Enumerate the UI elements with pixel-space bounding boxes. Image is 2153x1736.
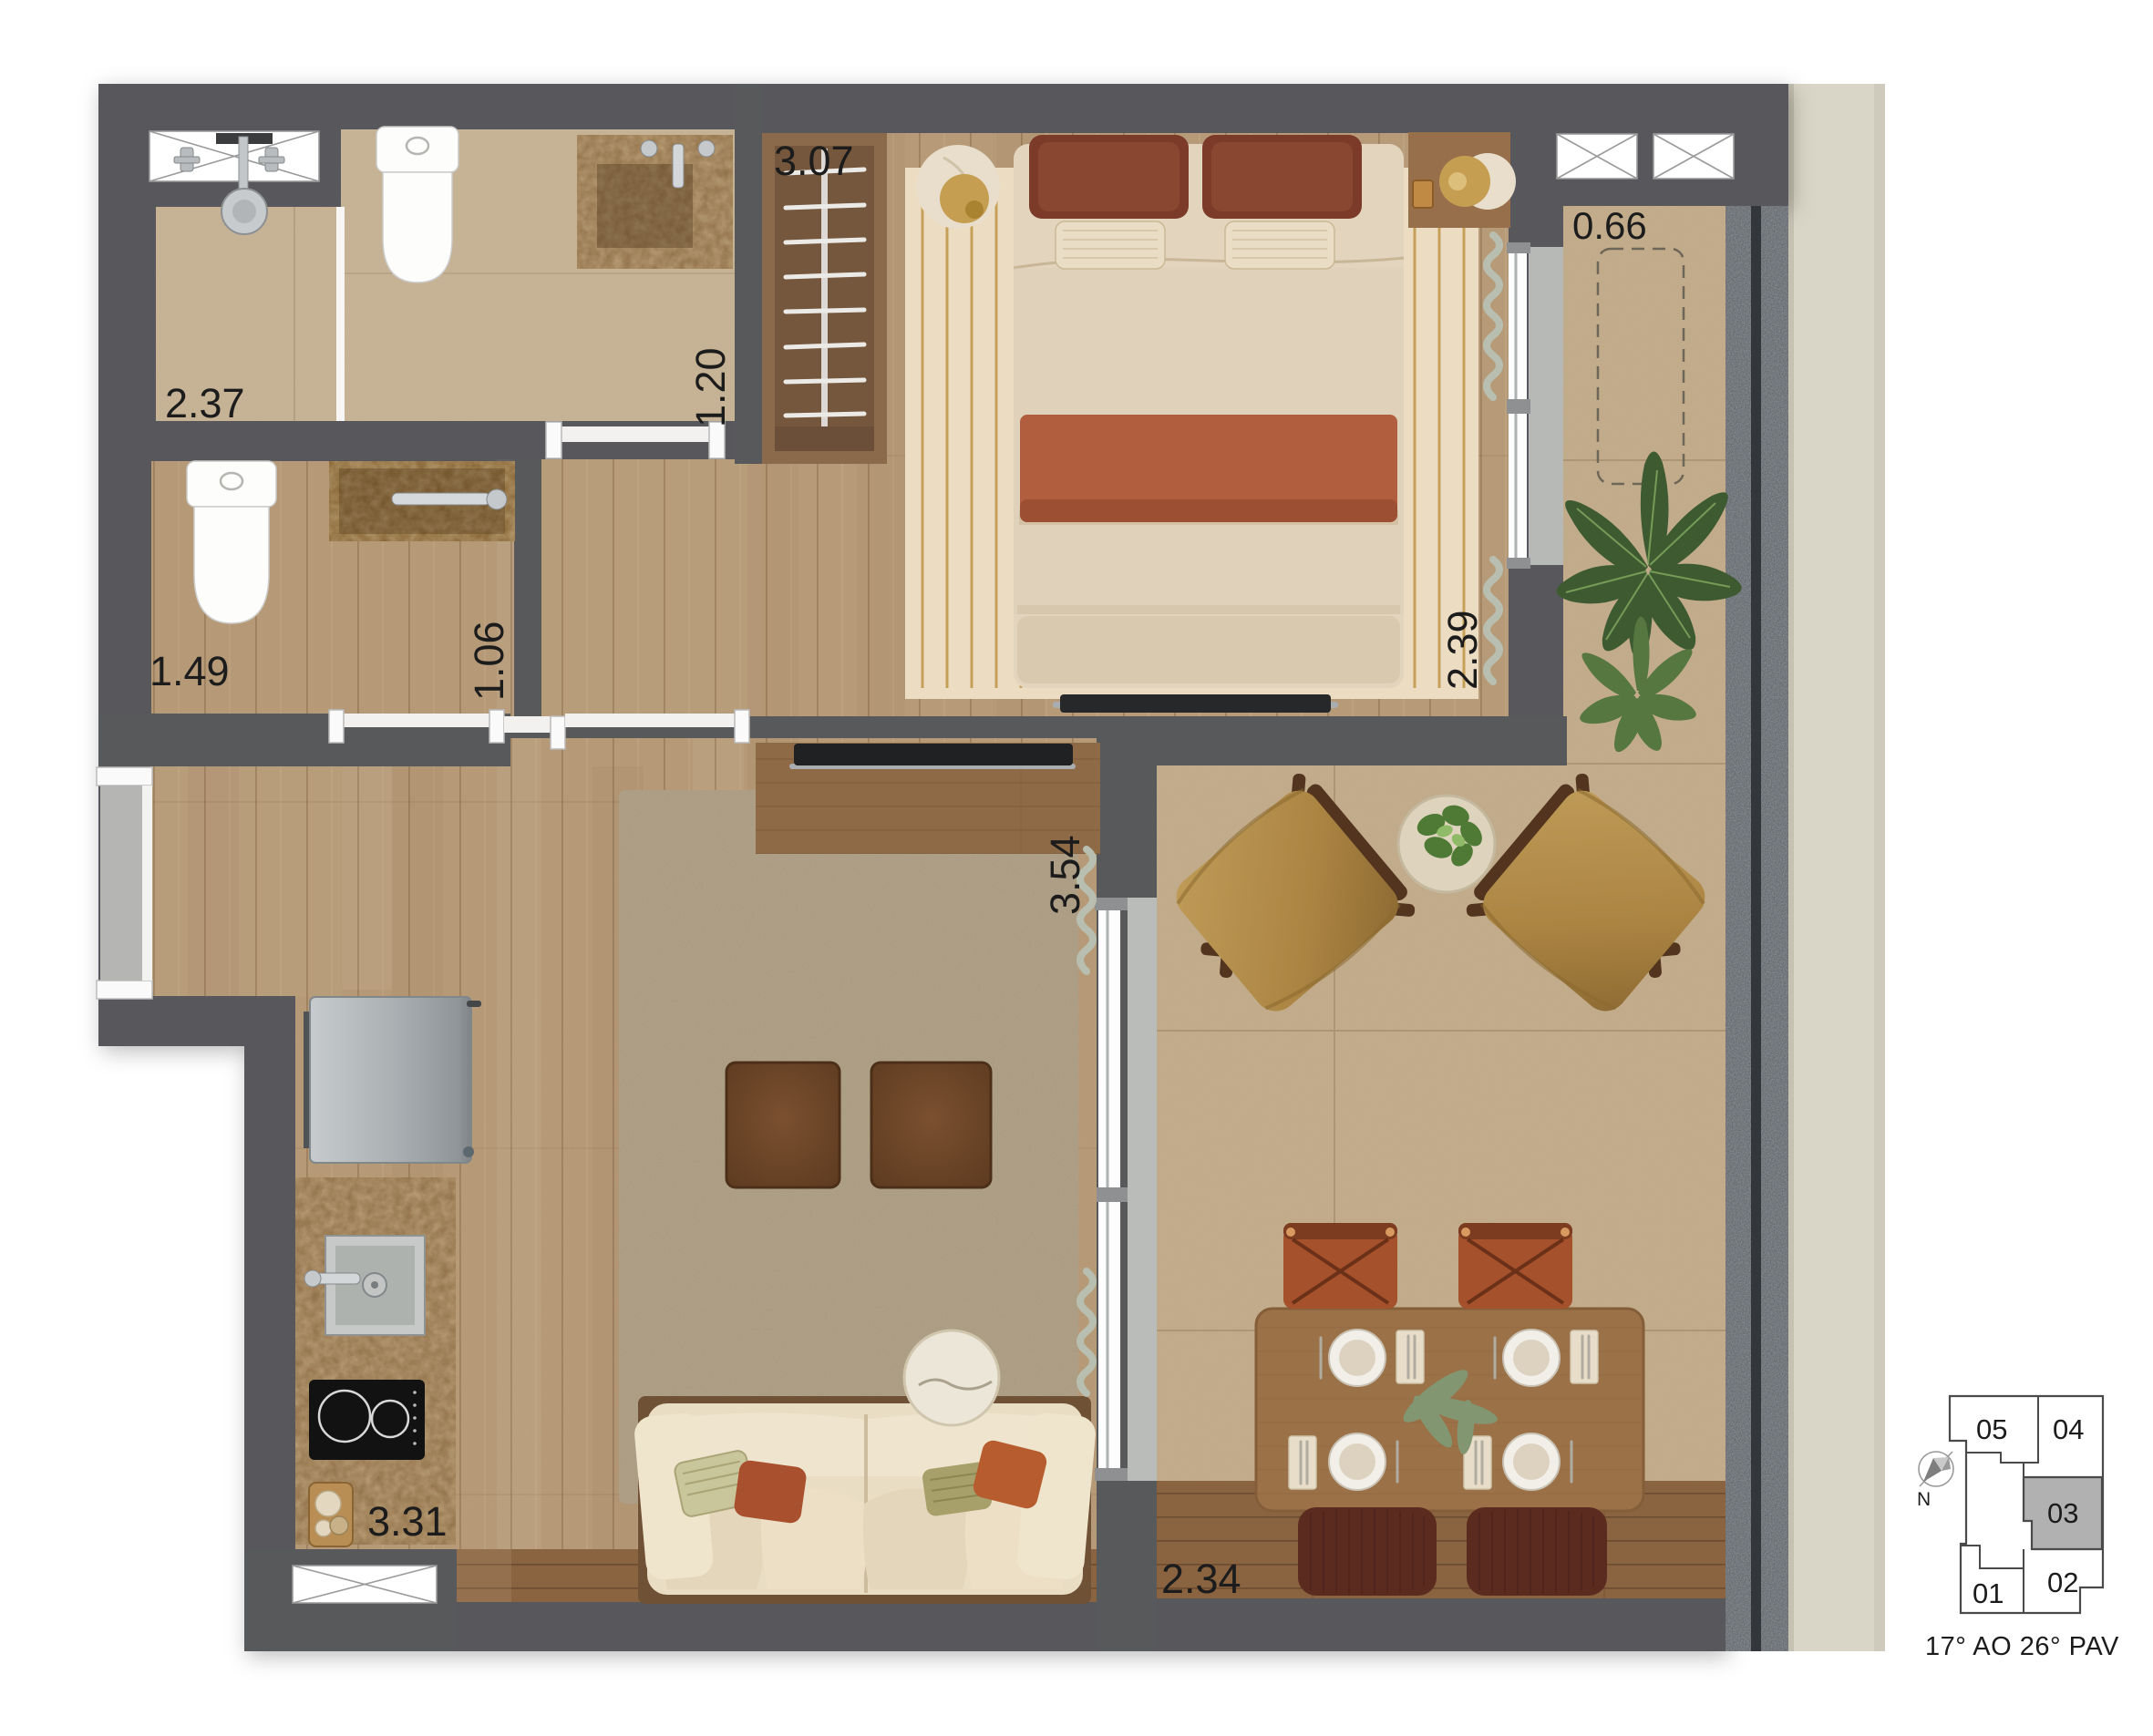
svg-text:2.37: 2.37 [165,380,245,426]
svg-text:2.39: 2.39 [1439,610,1486,690]
svg-text:01: 01 [1973,1577,2004,1609]
svg-text:03: 03 [2047,1497,2078,1529]
svg-text:3.31: 3.31 [367,1498,448,1545]
svg-text:2.34: 2.34 [1161,1556,1241,1602]
svg-text:05: 05 [1976,1413,2007,1445]
svg-text:3.07: 3.07 [774,138,854,184]
svg-text:N: N [1917,1489,1931,1510]
svg-text:1.06: 1.06 [466,621,512,701]
svg-text:3.54: 3.54 [1042,835,1088,915]
svg-text:02: 02 [2047,1567,2078,1598]
svg-text:1.49: 1.49 [149,648,230,694]
svg-text:0.66: 0.66 [1572,204,1647,247]
svg-text:04: 04 [2053,1413,2084,1445]
svg-text:17° AO 26° PAV: 17° AO 26° PAV [1925,1632,2119,1661]
svg-text:1.20: 1.20 [687,347,734,427]
